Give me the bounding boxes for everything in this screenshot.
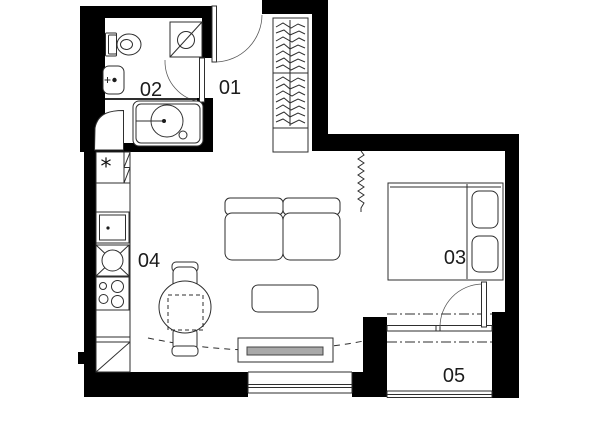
entrance-door-leaf xyxy=(212,6,217,62)
floor-plan-page: * xyxy=(0,0,600,426)
entrance-door xyxy=(212,6,262,62)
room-label-balcony: 05 xyxy=(443,365,465,387)
entrance-door-swing-arc xyxy=(217,15,263,62)
balcony-door-swing-arc xyxy=(440,284,482,327)
room-label-living-room: 04 xyxy=(138,250,160,272)
sofa-back-cushion xyxy=(225,198,283,215)
bathroom-door-swing-arc xyxy=(165,60,202,102)
bathroom-door-leaf xyxy=(200,58,205,102)
dining-set xyxy=(159,262,211,356)
tv-bench xyxy=(238,338,333,362)
vent-shaft xyxy=(170,22,202,57)
pillow xyxy=(472,191,498,228)
tv xyxy=(247,347,323,355)
floor-plan-svg: * xyxy=(0,0,600,426)
balcony-door-leaf xyxy=(482,282,487,327)
sofa-back-cushion xyxy=(283,198,340,215)
balcony xyxy=(387,314,492,398)
living-room-window xyxy=(248,372,352,393)
balcony-railing xyxy=(387,391,492,398)
sofa-seat-cushion xyxy=(225,213,283,260)
faucet-dot xyxy=(112,78,116,82)
room-label-bedroom: 03 xyxy=(444,247,466,269)
pillow xyxy=(472,236,498,272)
room-label-bathroom: 02 xyxy=(140,79,162,101)
balcony-door xyxy=(440,282,487,327)
bathtub xyxy=(133,101,203,146)
washbasin xyxy=(103,66,124,94)
sofa xyxy=(225,198,340,260)
bathroom-door xyxy=(165,58,205,102)
kitchen-counter: * xyxy=(96,152,130,372)
curtain-line xyxy=(358,151,364,212)
coffee-table xyxy=(252,285,318,312)
gas-boiler-symbol: * xyxy=(101,155,112,180)
sofa-seat-cushion xyxy=(283,213,340,260)
toilet xyxy=(106,33,142,56)
room-label-hallway: 01 xyxy=(219,77,241,99)
wardrobe xyxy=(273,18,308,152)
